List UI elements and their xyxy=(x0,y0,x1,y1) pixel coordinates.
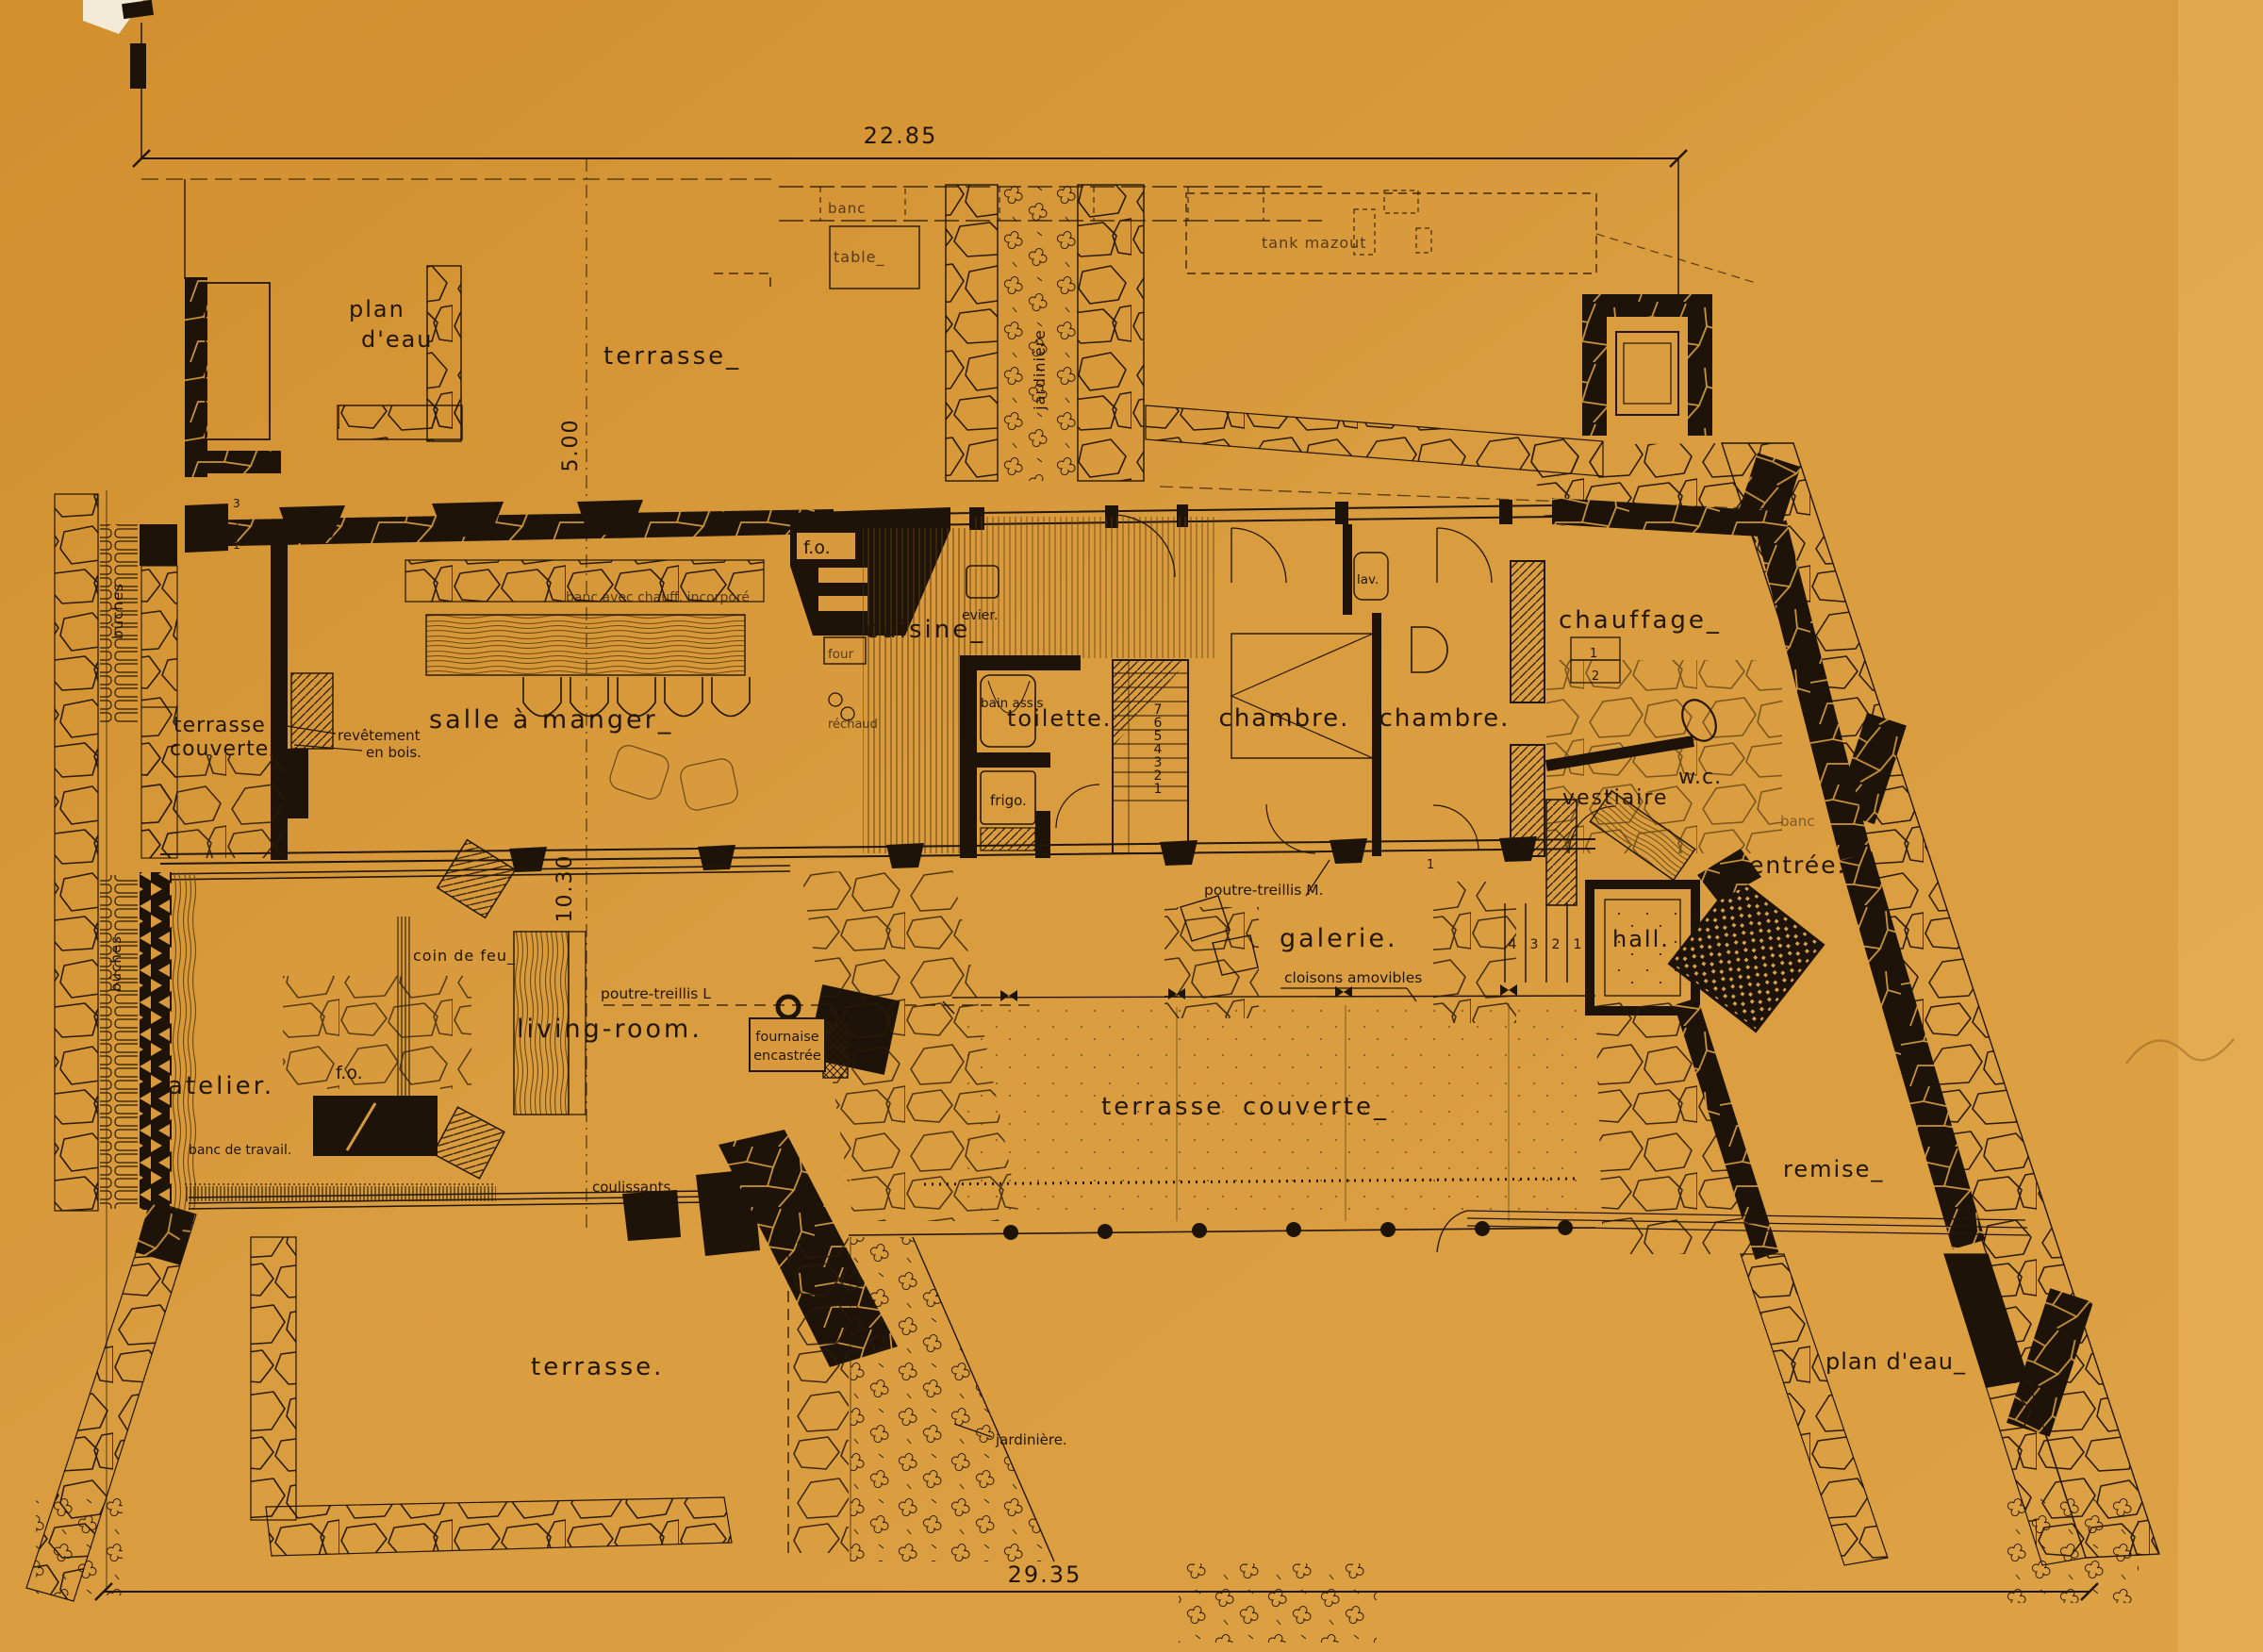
galerie-wall-mark: 1 xyxy=(1427,858,1434,872)
label-living-room: living-room. xyxy=(517,1015,702,1044)
left-step-numbers: 3 2 1 xyxy=(233,497,240,552)
label-wc: w.c. xyxy=(1678,766,1722,789)
label-terrasse-couverte-mid-1: terrasse xyxy=(1101,1093,1224,1121)
label-fo-cuisine: f.o. xyxy=(803,537,831,558)
label-banc-top: banc xyxy=(828,200,866,217)
dim-bottom-label: 29.35 xyxy=(1008,1561,1082,1588)
label-terrasse-couverte-left-1: terrasse xyxy=(173,714,266,737)
label-entree: entrée. xyxy=(1749,851,1846,879)
label-cloisons: cloisons amovibles xyxy=(1284,969,1422,986)
label-table-top: table_ xyxy=(834,248,885,267)
label-jardiniere-bottom: jardinière. xyxy=(995,1431,1067,1448)
label-lav: lav. xyxy=(1357,572,1379,587)
left-step-1: 1 xyxy=(233,538,240,552)
chauffage-step-1: 1 xyxy=(1590,647,1597,661)
label-buches-upper: bûches xyxy=(109,583,126,639)
label-fournaise-1: fournaise xyxy=(755,1030,819,1045)
label-hall: hall. xyxy=(1612,926,1670,952)
left-step-2: 2 xyxy=(233,518,240,531)
floor-plan-sheet: 22.85 5.00 10.30 29.35 plan d'eau terras… xyxy=(0,0,2263,1652)
label-fournaise-2: encastrée xyxy=(753,1049,821,1064)
label-chambre-b: chambre. xyxy=(1379,704,1511,733)
label-remise: remise_ xyxy=(1783,1156,1884,1182)
label-banc-travail: banc de travail. xyxy=(189,1143,291,1158)
label-revetement-1: revêtement xyxy=(338,727,421,744)
label-evier: evier. xyxy=(962,608,998,623)
label-frigo: frigo. xyxy=(990,792,1027,809)
label-plan-eau-bottom: plan d'eau_ xyxy=(1825,1348,1966,1375)
label-galerie: galerie. xyxy=(1280,924,1398,953)
label-buches-lower: bûches xyxy=(107,935,124,992)
label-banc-entree: banc xyxy=(1780,813,1814,830)
stair-numbers: 7 6 5 4 3 2 1 xyxy=(1154,702,1163,797)
hall-step-3: 3 xyxy=(1530,937,1539,952)
label-salle-a-manger: salle à manger_ xyxy=(429,705,673,735)
dim-main-label: 10.30 xyxy=(553,854,577,923)
label-rechaud: réchaud xyxy=(828,718,878,732)
chauffage-step-2: 2 xyxy=(1592,669,1599,684)
label-chauffage: chauffage_ xyxy=(1559,606,1722,635)
label-poutre-l: poutre-treillis L xyxy=(601,985,711,1002)
label-plan-eau-top-1: plan xyxy=(349,296,405,322)
label-terrasse-couverte-left-2: couverte. xyxy=(170,737,276,761)
label-fo-atelier: f.o. xyxy=(336,1063,363,1083)
label-coulissants: coulissants. xyxy=(592,1179,675,1196)
label-coin-de-feu: coin de feu_ xyxy=(413,947,516,966)
dim-top-label: 22.85 xyxy=(864,123,938,149)
label-terrasse-top: terrasse_ xyxy=(603,342,741,371)
label-revetement-2: en bois. xyxy=(366,744,421,761)
stair-num-1: 1 xyxy=(1154,782,1163,797)
label-four: four xyxy=(828,647,854,662)
label-terrasse-bottom: terrasse. xyxy=(531,1353,664,1381)
label-chambre-a: chambre. xyxy=(1219,704,1350,733)
hall-step-4: 4 xyxy=(1509,937,1517,952)
floor-plan-drawing: 22.85 5.00 10.30 29.35 plan d'eau terras… xyxy=(0,0,2263,1652)
label-terrasse-couverte-mid-2: couverte_ xyxy=(1243,1093,1389,1121)
label-toilette: toilette. xyxy=(1007,705,1112,732)
label-plan-eau-top-2: d'eau xyxy=(361,326,434,353)
dim-upper-label: 5.00 xyxy=(559,419,583,472)
label-atelier: atelier. xyxy=(168,1072,274,1100)
left-step-3: 3 xyxy=(233,497,240,510)
hall-step-1: 1 xyxy=(1574,937,1582,952)
hall-step-2: 2 xyxy=(1552,937,1561,952)
label-banc-chauff: banc avec chauff. incorporé xyxy=(566,590,750,605)
label-tank-mazout: tank mazout xyxy=(1262,234,1367,252)
label-jardiniere-top: jardinière xyxy=(1031,329,1049,411)
label-poutre-m: poutre-treillis M. xyxy=(1204,882,1324,899)
